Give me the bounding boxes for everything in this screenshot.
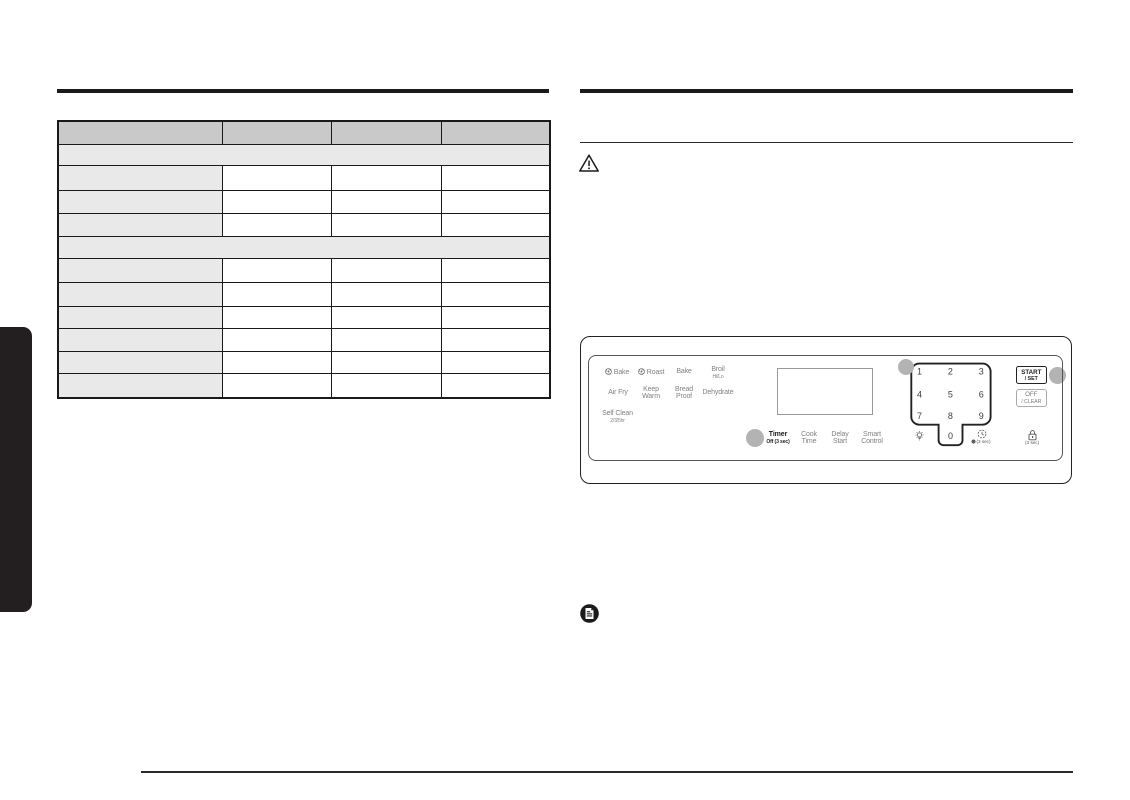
svg-text:6: 6 xyxy=(979,389,984,399)
svg-text:7: 7 xyxy=(917,411,922,421)
svg-text:1: 1 xyxy=(917,366,922,376)
svg-text:5: 5 xyxy=(948,389,953,399)
svg-text:8: 8 xyxy=(948,411,953,421)
svg-text:3: 3 xyxy=(979,366,984,376)
svg-text:9: 9 xyxy=(979,411,984,421)
svg-text:0: 0 xyxy=(948,431,953,441)
svg-text:4: 4 xyxy=(917,389,922,399)
svg-text:2: 2 xyxy=(948,366,953,376)
